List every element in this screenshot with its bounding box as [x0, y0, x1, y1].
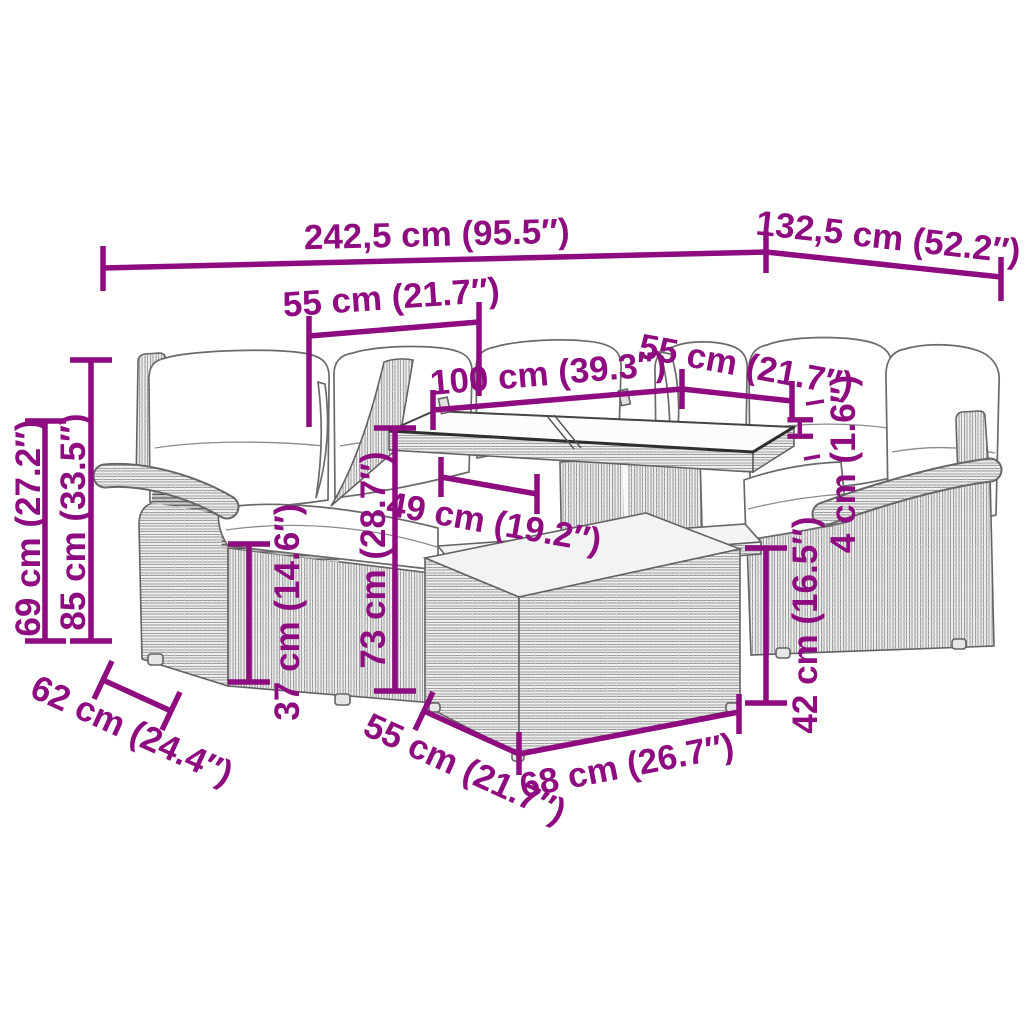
dim-seat-depth-label: 62 cm (24.4″)	[25, 668, 239, 794]
sofa-foot	[335, 694, 350, 705]
dim-table-height-label: 73 cm (28.7″)	[354, 451, 393, 668]
sofa-foot	[148, 654, 163, 665]
dim-height-total: 85 cm (33.5″)	[54, 360, 112, 641]
dim-seat-depth: 62 cm (24.4″)	[25, 661, 239, 793]
dim-overall-width-label: 242,5 cm (95.5″)	[303, 212, 570, 257]
dim-left-seat-width-label: 55 cm (21.7″)	[282, 271, 501, 325]
dim-glass-h-label: H	[780, 415, 821, 442]
right-sofa-section	[744, 462, 994, 658]
dim-overall-depth-label: 132,5 cm (52.2″)	[754, 204, 1023, 272]
dim-height-total-label: 85 cm (33.5″)	[54, 413, 93, 630]
diagram-svg: 242,5 cm (95.5″) 132,5 cm (52.2″) 55 cm …	[0, 0, 1024, 1024]
dim-overall-depth: 132,5 cm (52.2″)	[754, 204, 1023, 301]
product-dimension-diagram: 242,5 cm (95.5″) 132,5 cm (52.2″) 55 cm …	[0, 0, 1024, 1024]
ottoman-foot	[429, 703, 440, 712]
dim-glass-thickness-label: 4 cm (1.6″)	[824, 375, 863, 553]
dim-seat-height-label: 37 cm (14.6″)	[268, 503, 307, 720]
sofa-foot	[952, 639, 966, 649]
dim-height-back-label: 69 cm (27.2″)	[9, 419, 48, 636]
dim-ottoman-height-label: 42 cm (16.5″)	[786, 516, 825, 733]
